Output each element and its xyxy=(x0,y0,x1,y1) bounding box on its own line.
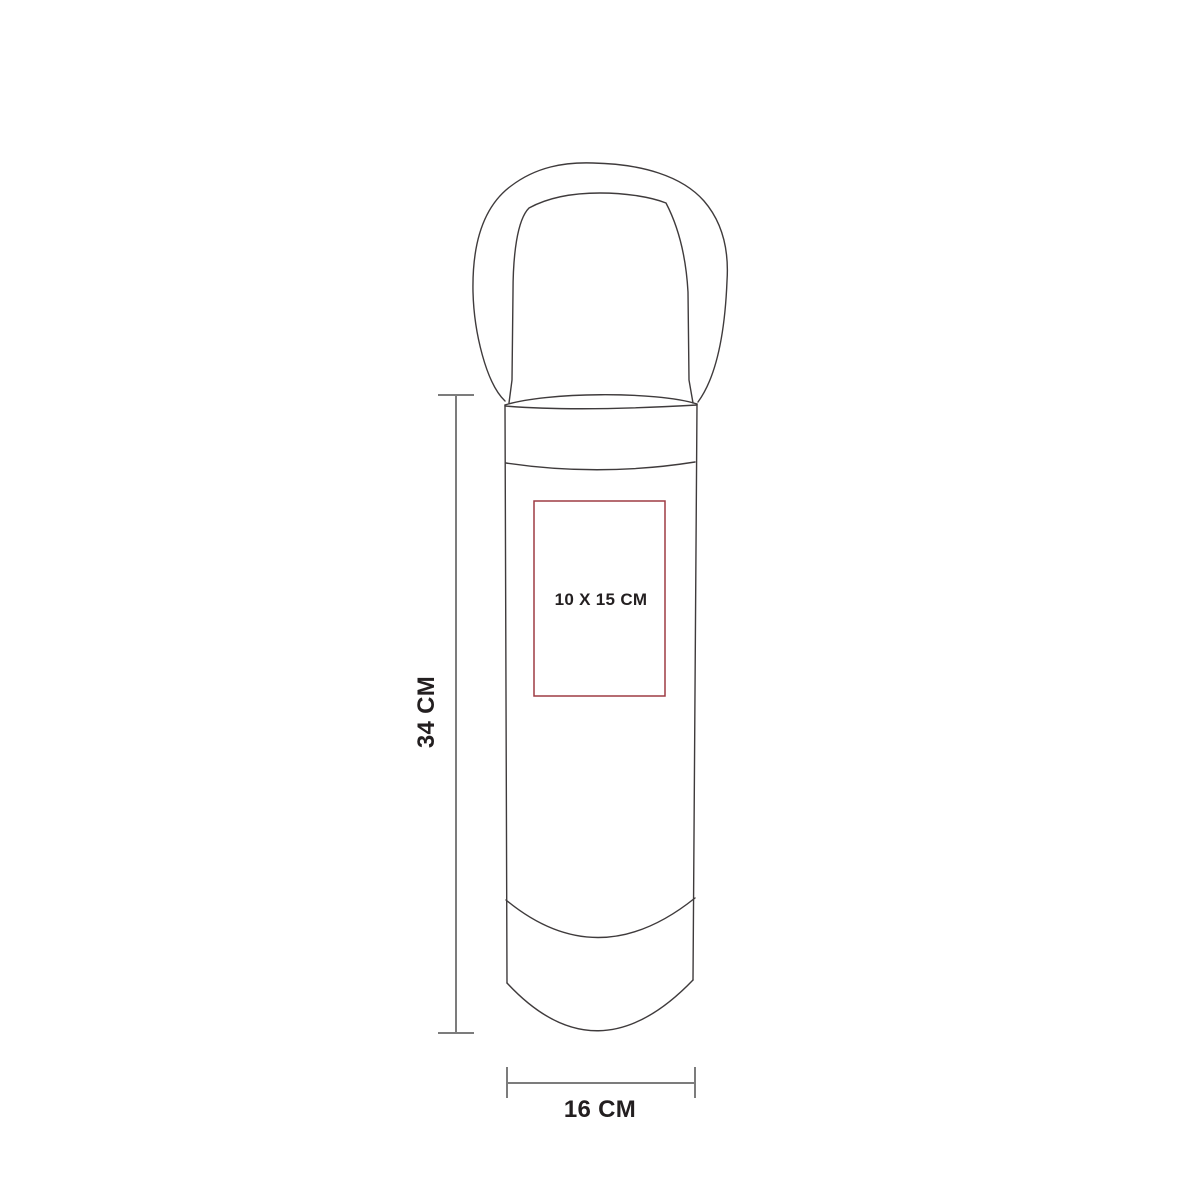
base-seam-edge xyxy=(506,898,695,938)
body-right-edge xyxy=(693,404,697,980)
collar-top-front-edge xyxy=(505,405,697,409)
diagram-stage: 10 X 15 CM 34 CM 16 CM xyxy=(0,0,1200,1200)
collar-bottom-edge xyxy=(506,462,695,470)
collar-top-back-edge xyxy=(505,395,697,405)
width-dimension: 16 CM xyxy=(507,1067,695,1123)
width-dimension-label: 16 CM xyxy=(564,1096,636,1123)
print-area: 10 X 15 CM xyxy=(534,501,665,696)
height-dimension-label: 34 CM xyxy=(413,676,440,748)
handle-inner-edge xyxy=(509,193,693,403)
body-left-edge xyxy=(505,405,507,983)
base-bottom-edge xyxy=(507,980,693,1031)
height-dimension: 34 CM xyxy=(413,395,474,1033)
print-area-label: 10 X 15 CM xyxy=(555,590,648,609)
diagram-canvas: 10 X 15 CM 34 CM 16 CM xyxy=(0,0,1200,1200)
